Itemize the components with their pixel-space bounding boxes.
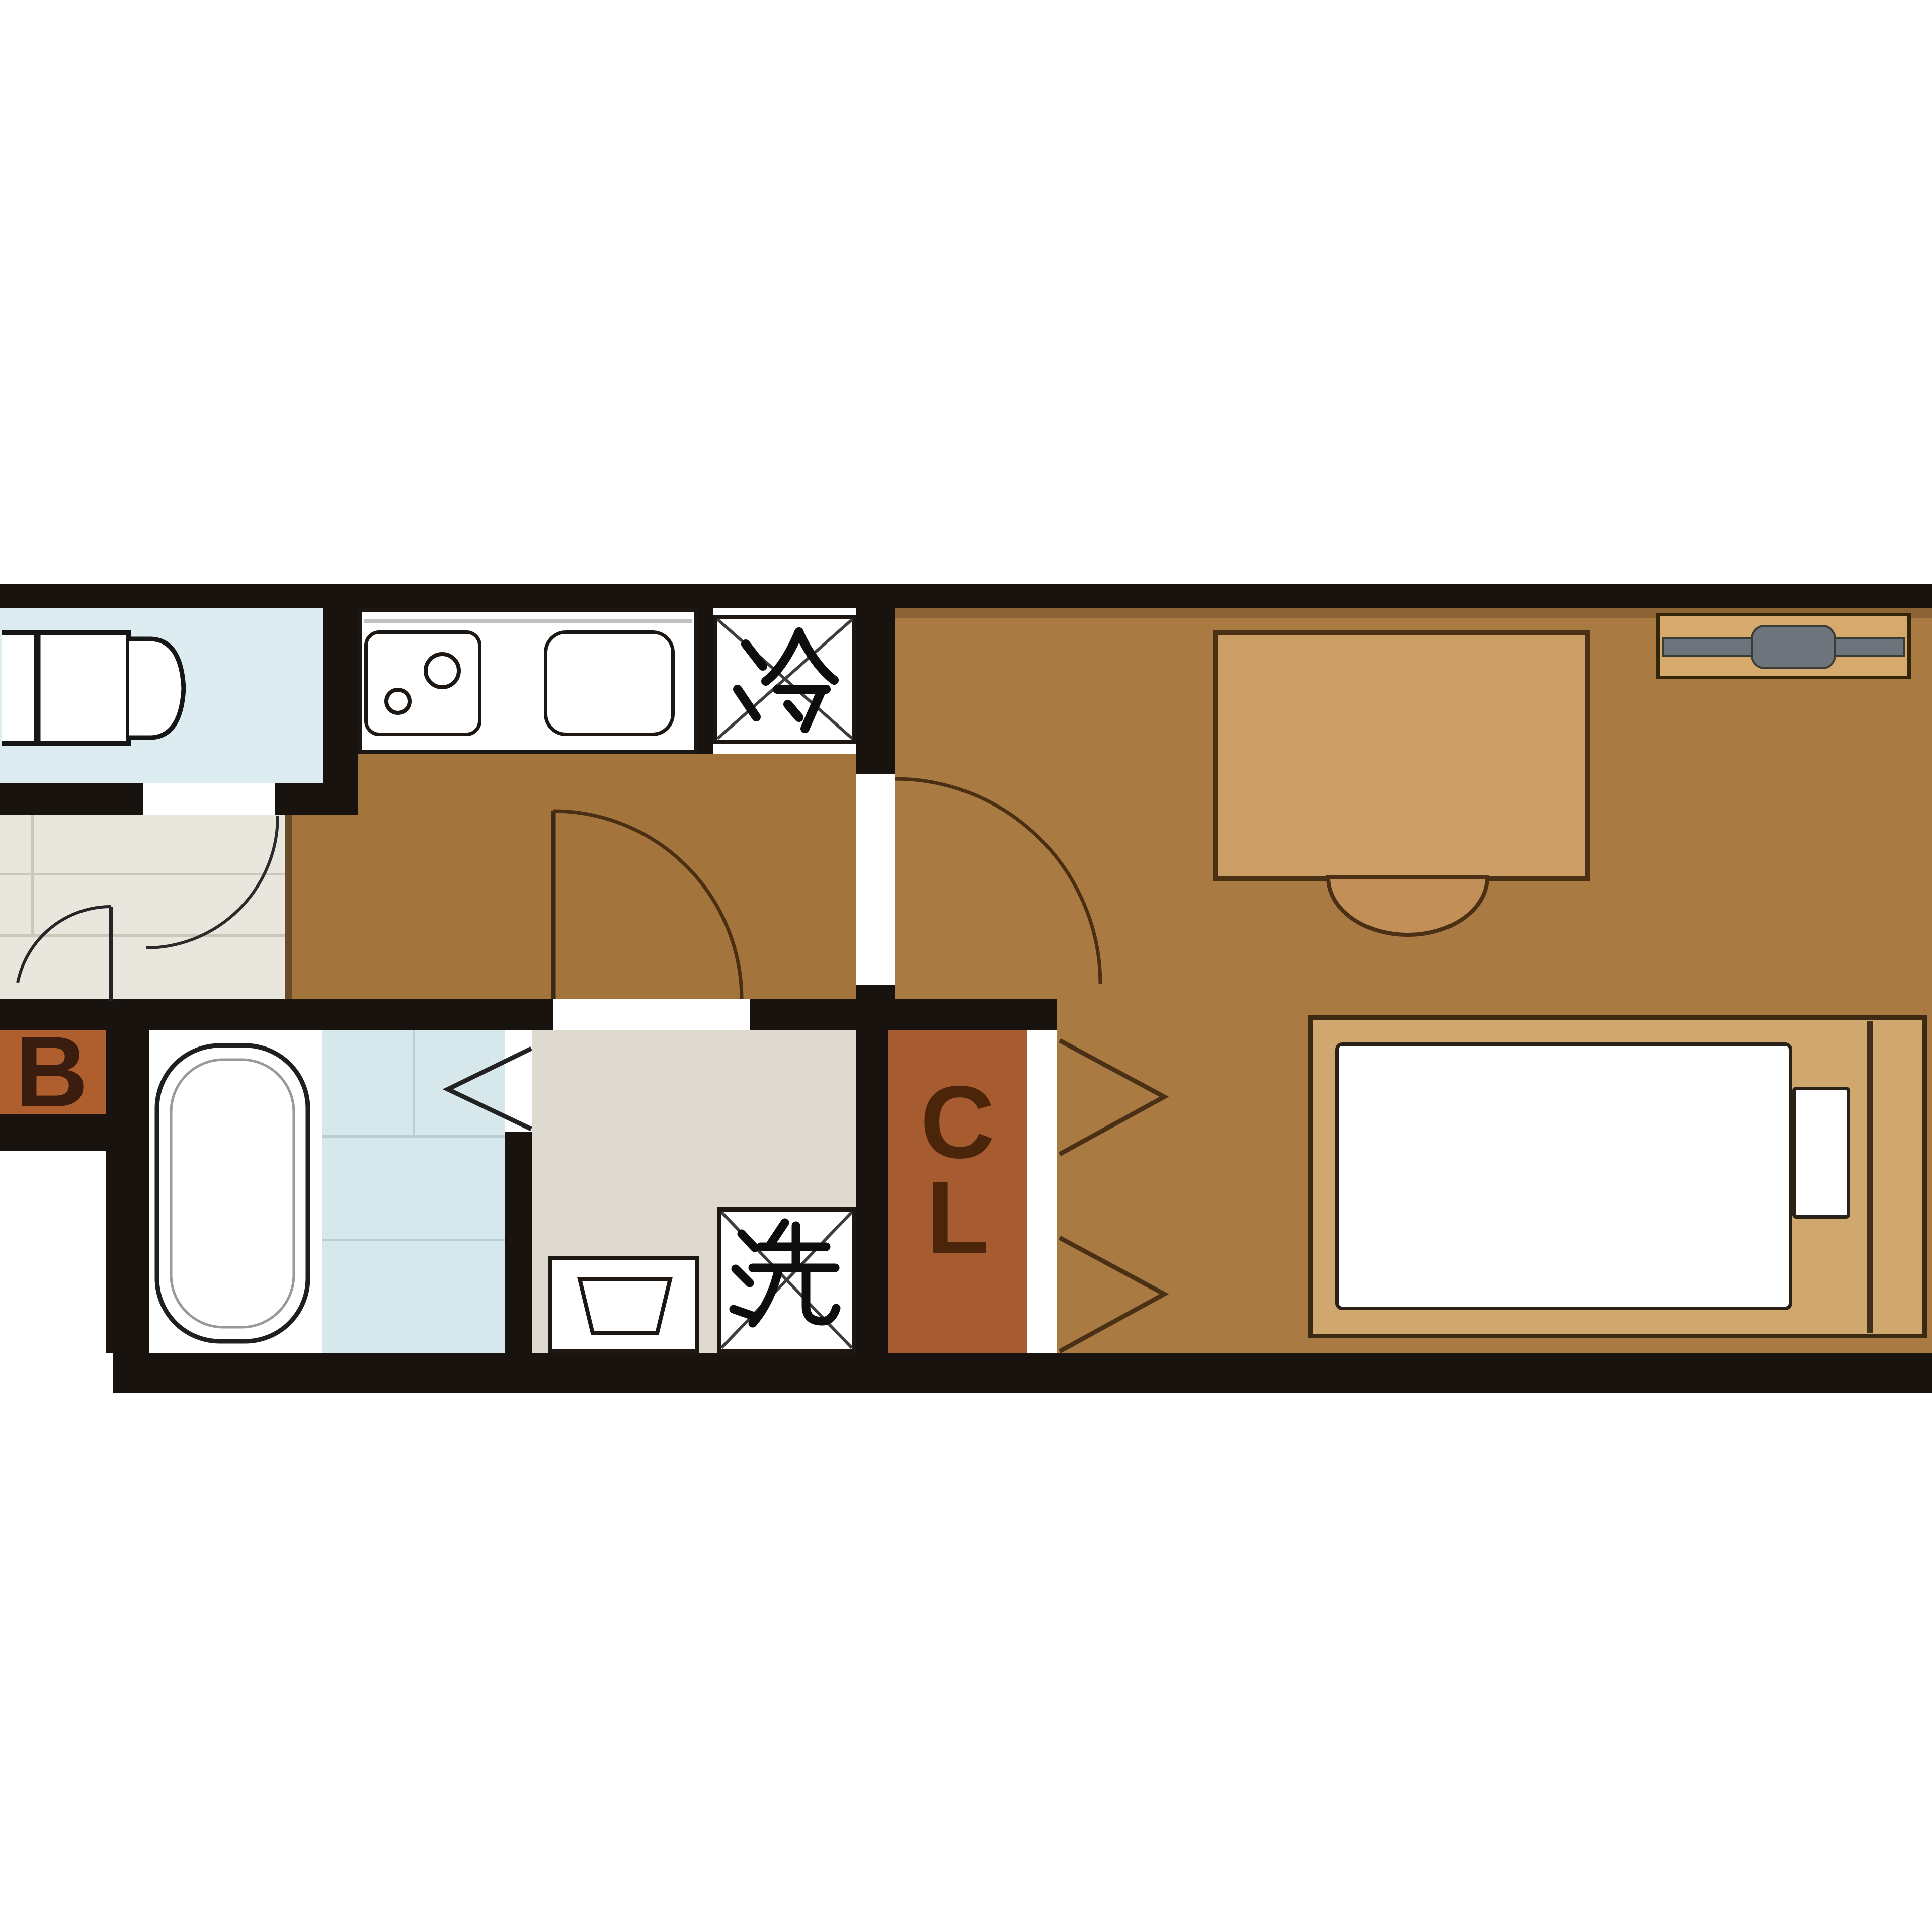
- pillow: [1792, 1087, 1850, 1219]
- kitchen-counter-edge-line: [364, 619, 692, 623]
- desk: [1213, 630, 1590, 881]
- bathroom-tile-line-v: [413, 1030, 415, 1138]
- mainroom-doorway-gap: [856, 774, 895, 985]
- bed-frame-inner-line: [1867, 1021, 1873, 1333]
- hall-mainroom-wall-top: [856, 608, 895, 774]
- washroom-closet-wall: [856, 1030, 888, 1353]
- hall-floor-left: [292, 815, 358, 999]
- balcony-label: B: [0, 1031, 103, 1113]
- bathroom-tub-area: [149, 1030, 322, 1353]
- closet-door-strip: [1027, 1030, 1057, 1353]
- basin-box: [548, 1256, 699, 1353]
- bathroom-tile-line-h2: [322, 1239, 505, 1241]
- washroom-doorway-gap: [553, 999, 750, 1030]
- stove-box: [364, 630, 481, 736]
- closet-label-top: C: [888, 1072, 1027, 1172]
- tv-center-bulge: [1751, 625, 1836, 669]
- toilet-doorway-gap: [143, 783, 275, 815]
- entrance-tile-line-h1: [0, 873, 285, 875]
- refrigerator-box: [713, 615, 856, 744]
- hall-bottom-wall: [0, 999, 1057, 1030]
- washing-machine-box: [717, 1207, 856, 1353]
- balcony-right-wall: [106, 1030, 149, 1353]
- entrance-floor: [0, 815, 292, 1004]
- counter-fridge-wall-stub: [697, 608, 713, 754]
- toilet-room-floor: [0, 608, 323, 783]
- entrance-step-line: [285, 815, 292, 1004]
- entrance-tile-line-v: [31, 815, 34, 934]
- sink-box: [544, 630, 675, 736]
- entrance-tile-line-h2: [0, 934, 285, 937]
- bottom-wall: [113, 1353, 1932, 1393]
- mattress: [1335, 1042, 1792, 1310]
- bathroom-washroom-wall: [505, 1132, 532, 1353]
- floor-plan-canvas: B C L: [0, 0, 1932, 1932]
- bathroom-door-strip: [505, 1030, 532, 1132]
- top-wall: [0, 584, 1932, 608]
- closet-label-bottom: L: [888, 1167, 1027, 1268]
- hall-floor: [358, 754, 856, 999]
